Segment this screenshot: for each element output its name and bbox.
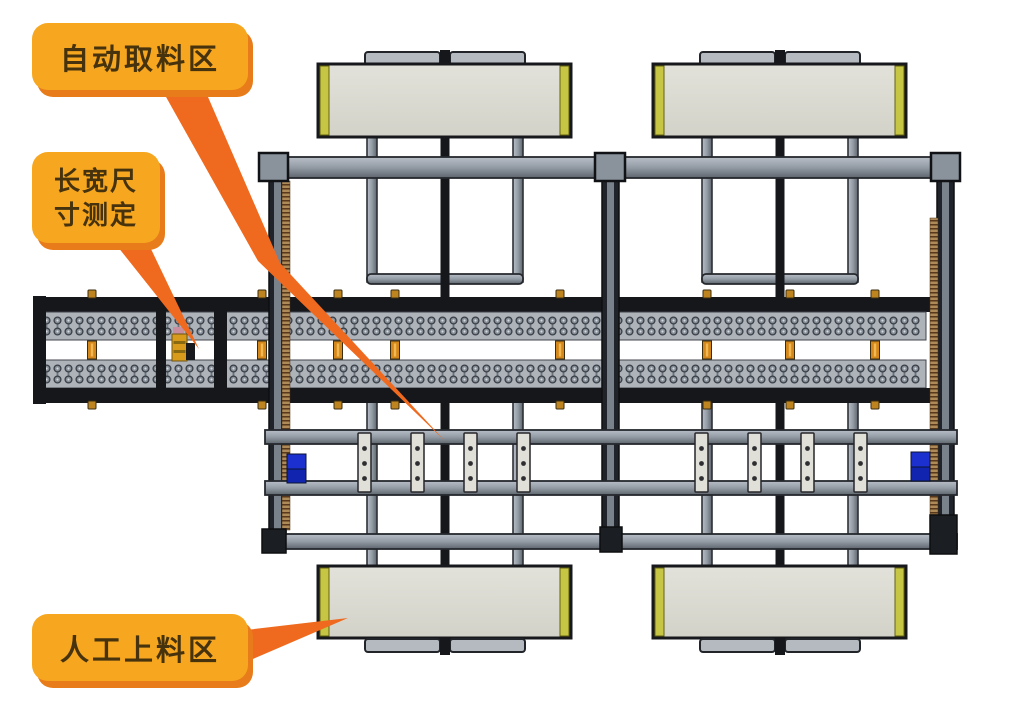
machine-top-view	[0, 0, 1036, 704]
chain-links-lower-row	[41, 362, 922, 386]
callout-automatic-pickup-area: 自动取料区	[32, 23, 248, 90]
callout-manual-loading-area: 人工上料区	[32, 614, 248, 681]
callout-label: 自动取料区	[60, 36, 220, 78]
callout-label: 长宽尺 寸测定	[54, 164, 138, 232]
equipment-layout-diagram: 自动取料区 长宽尺 寸测定 人工上料区	[0, 0, 1036, 704]
blue-sensor-left	[287, 454, 306, 483]
callout-length-width-measurement: 长宽尺 寸测定	[32, 152, 160, 243]
conveyor-left-end-cap	[33, 296, 46, 404]
callout-label: 人工上料区	[60, 627, 220, 669]
blue-sensor-right	[911, 452, 930, 481]
